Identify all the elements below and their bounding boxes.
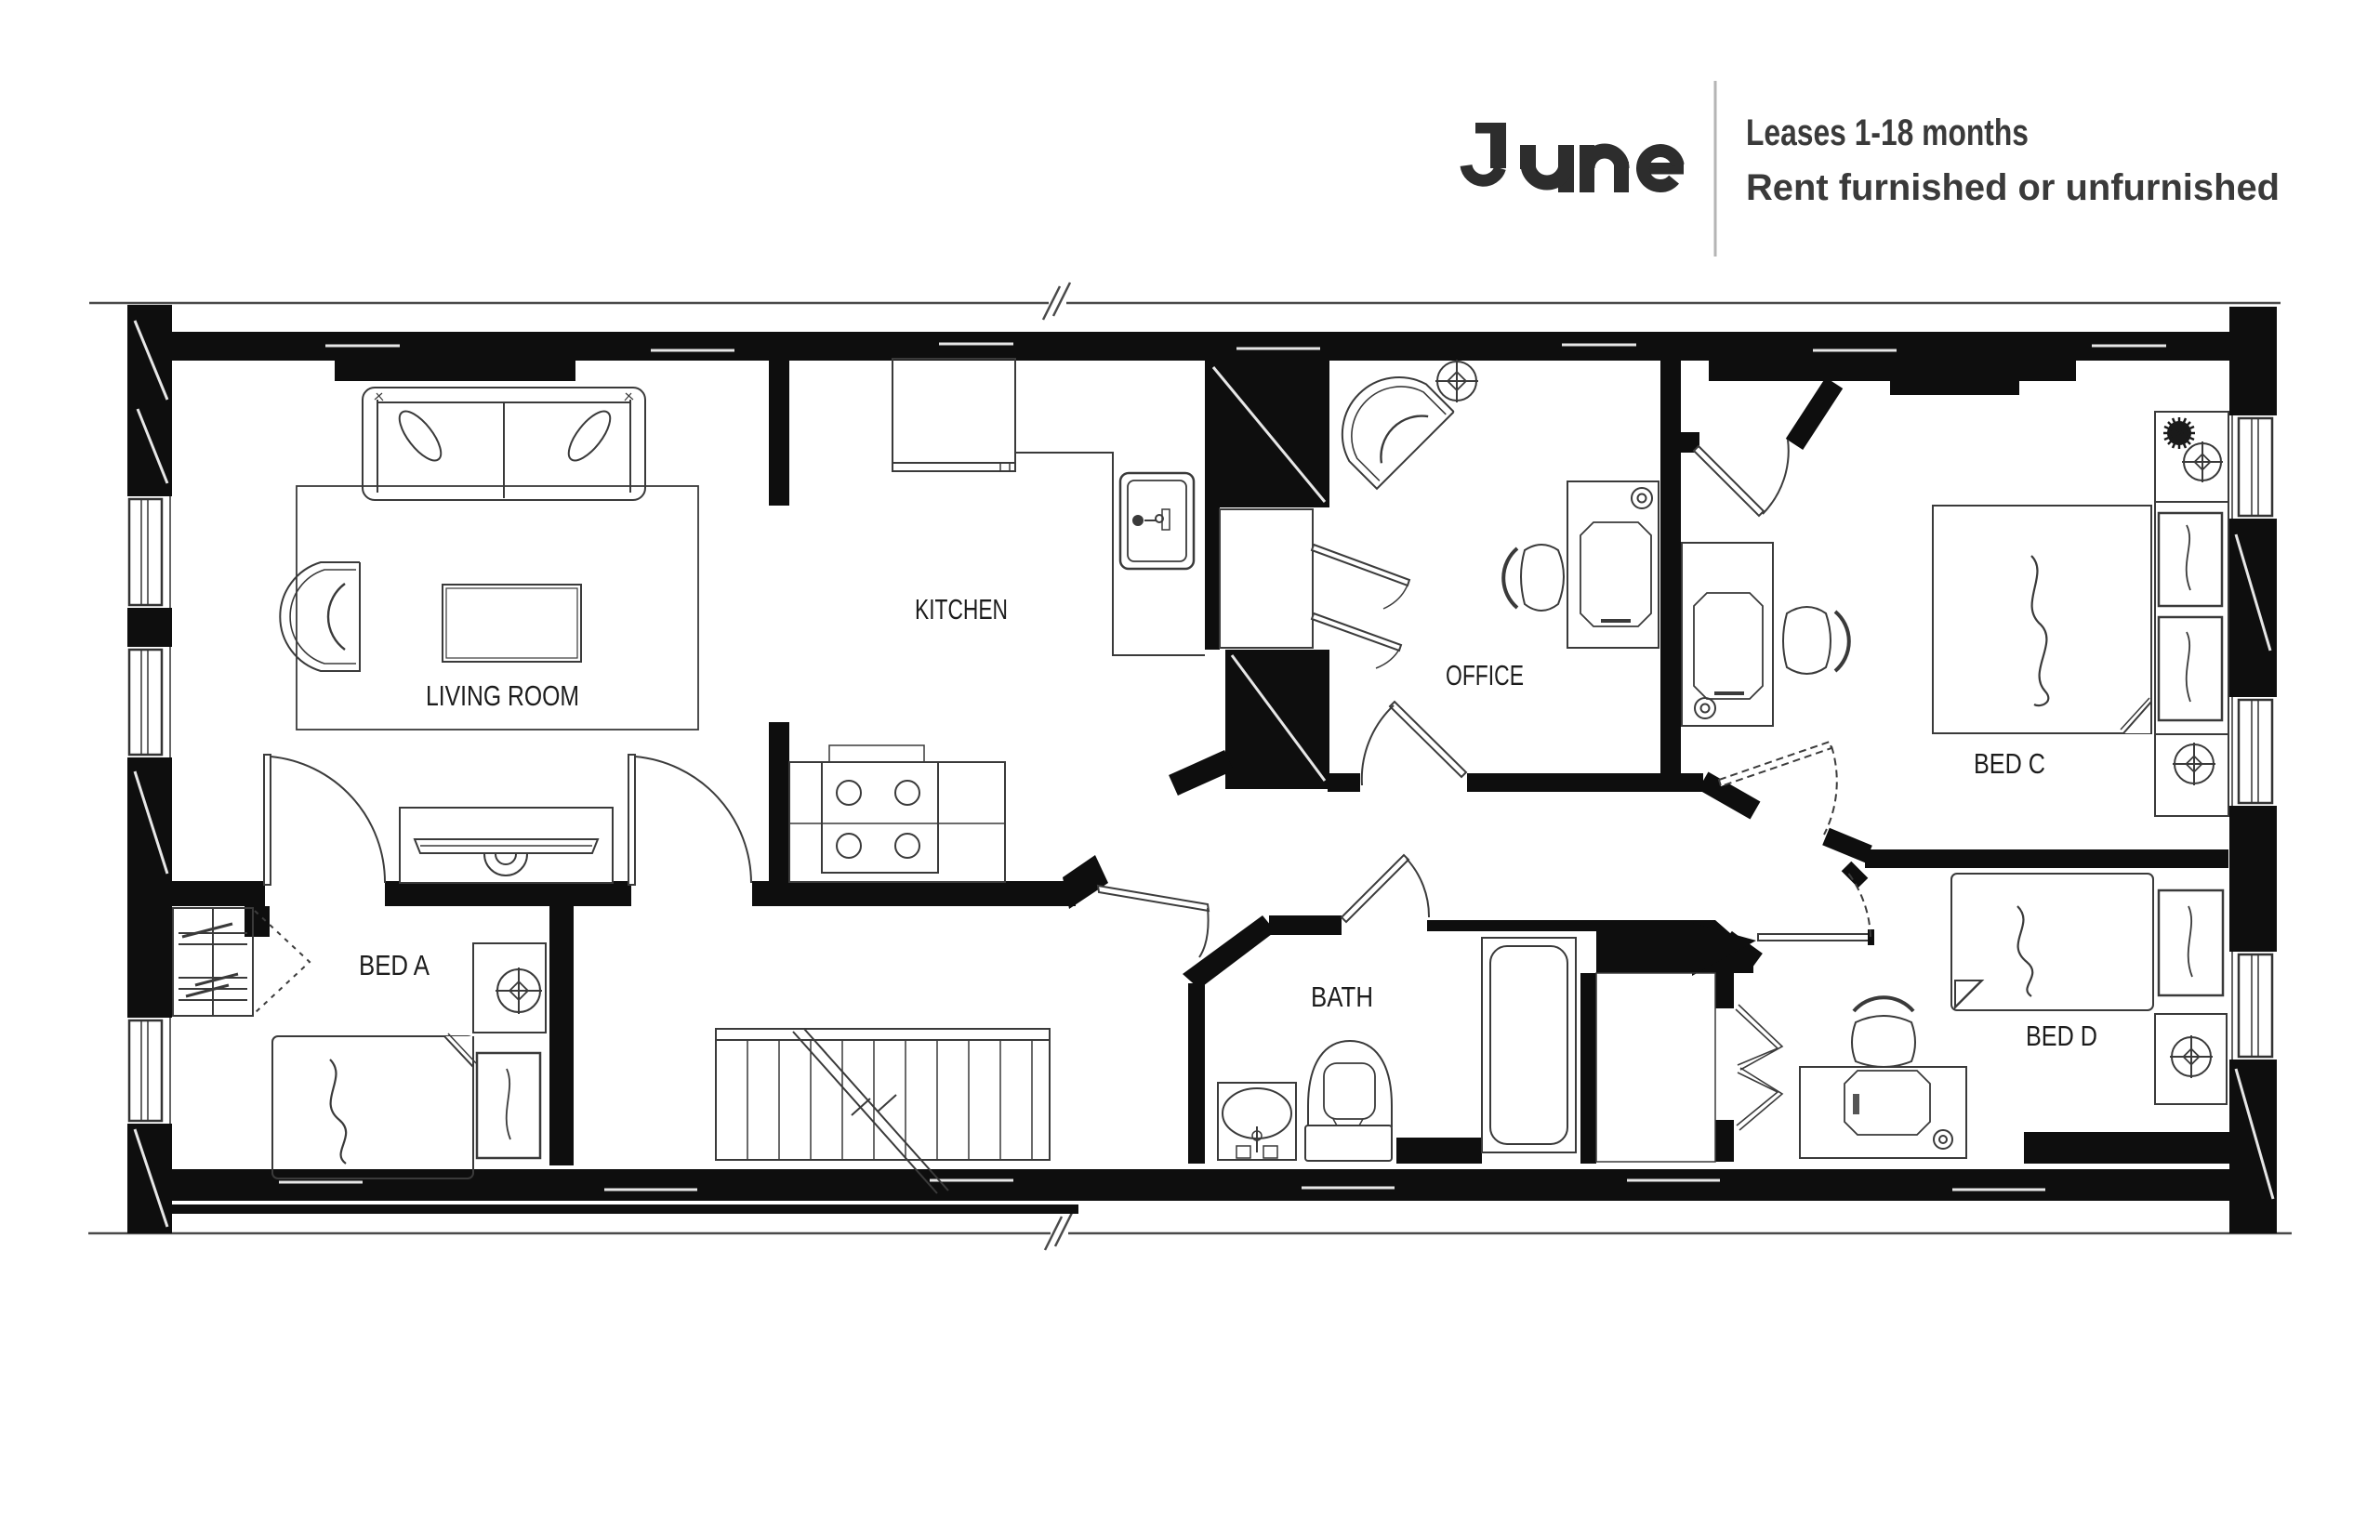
svg-text:BED D: BED D [2026,1020,2097,1052]
svg-text:Leases 1-18 months: Leases 1-18 months [1746,112,2029,153]
svg-text:KITCHEN: KITCHEN [915,593,1008,625]
svg-text:BATH: BATH [1311,981,1373,1013]
svg-text:Rent furnished or unfurnished: Rent furnished or unfurnished [1746,167,2280,208]
svg-text:BED C: BED C [1974,747,2045,780]
svg-text:LIVING ROOM: LIVING ROOM [426,679,579,712]
svg-text:OFFICE: OFFICE [1446,659,1524,691]
svg-text:BED A: BED A [359,949,430,981]
